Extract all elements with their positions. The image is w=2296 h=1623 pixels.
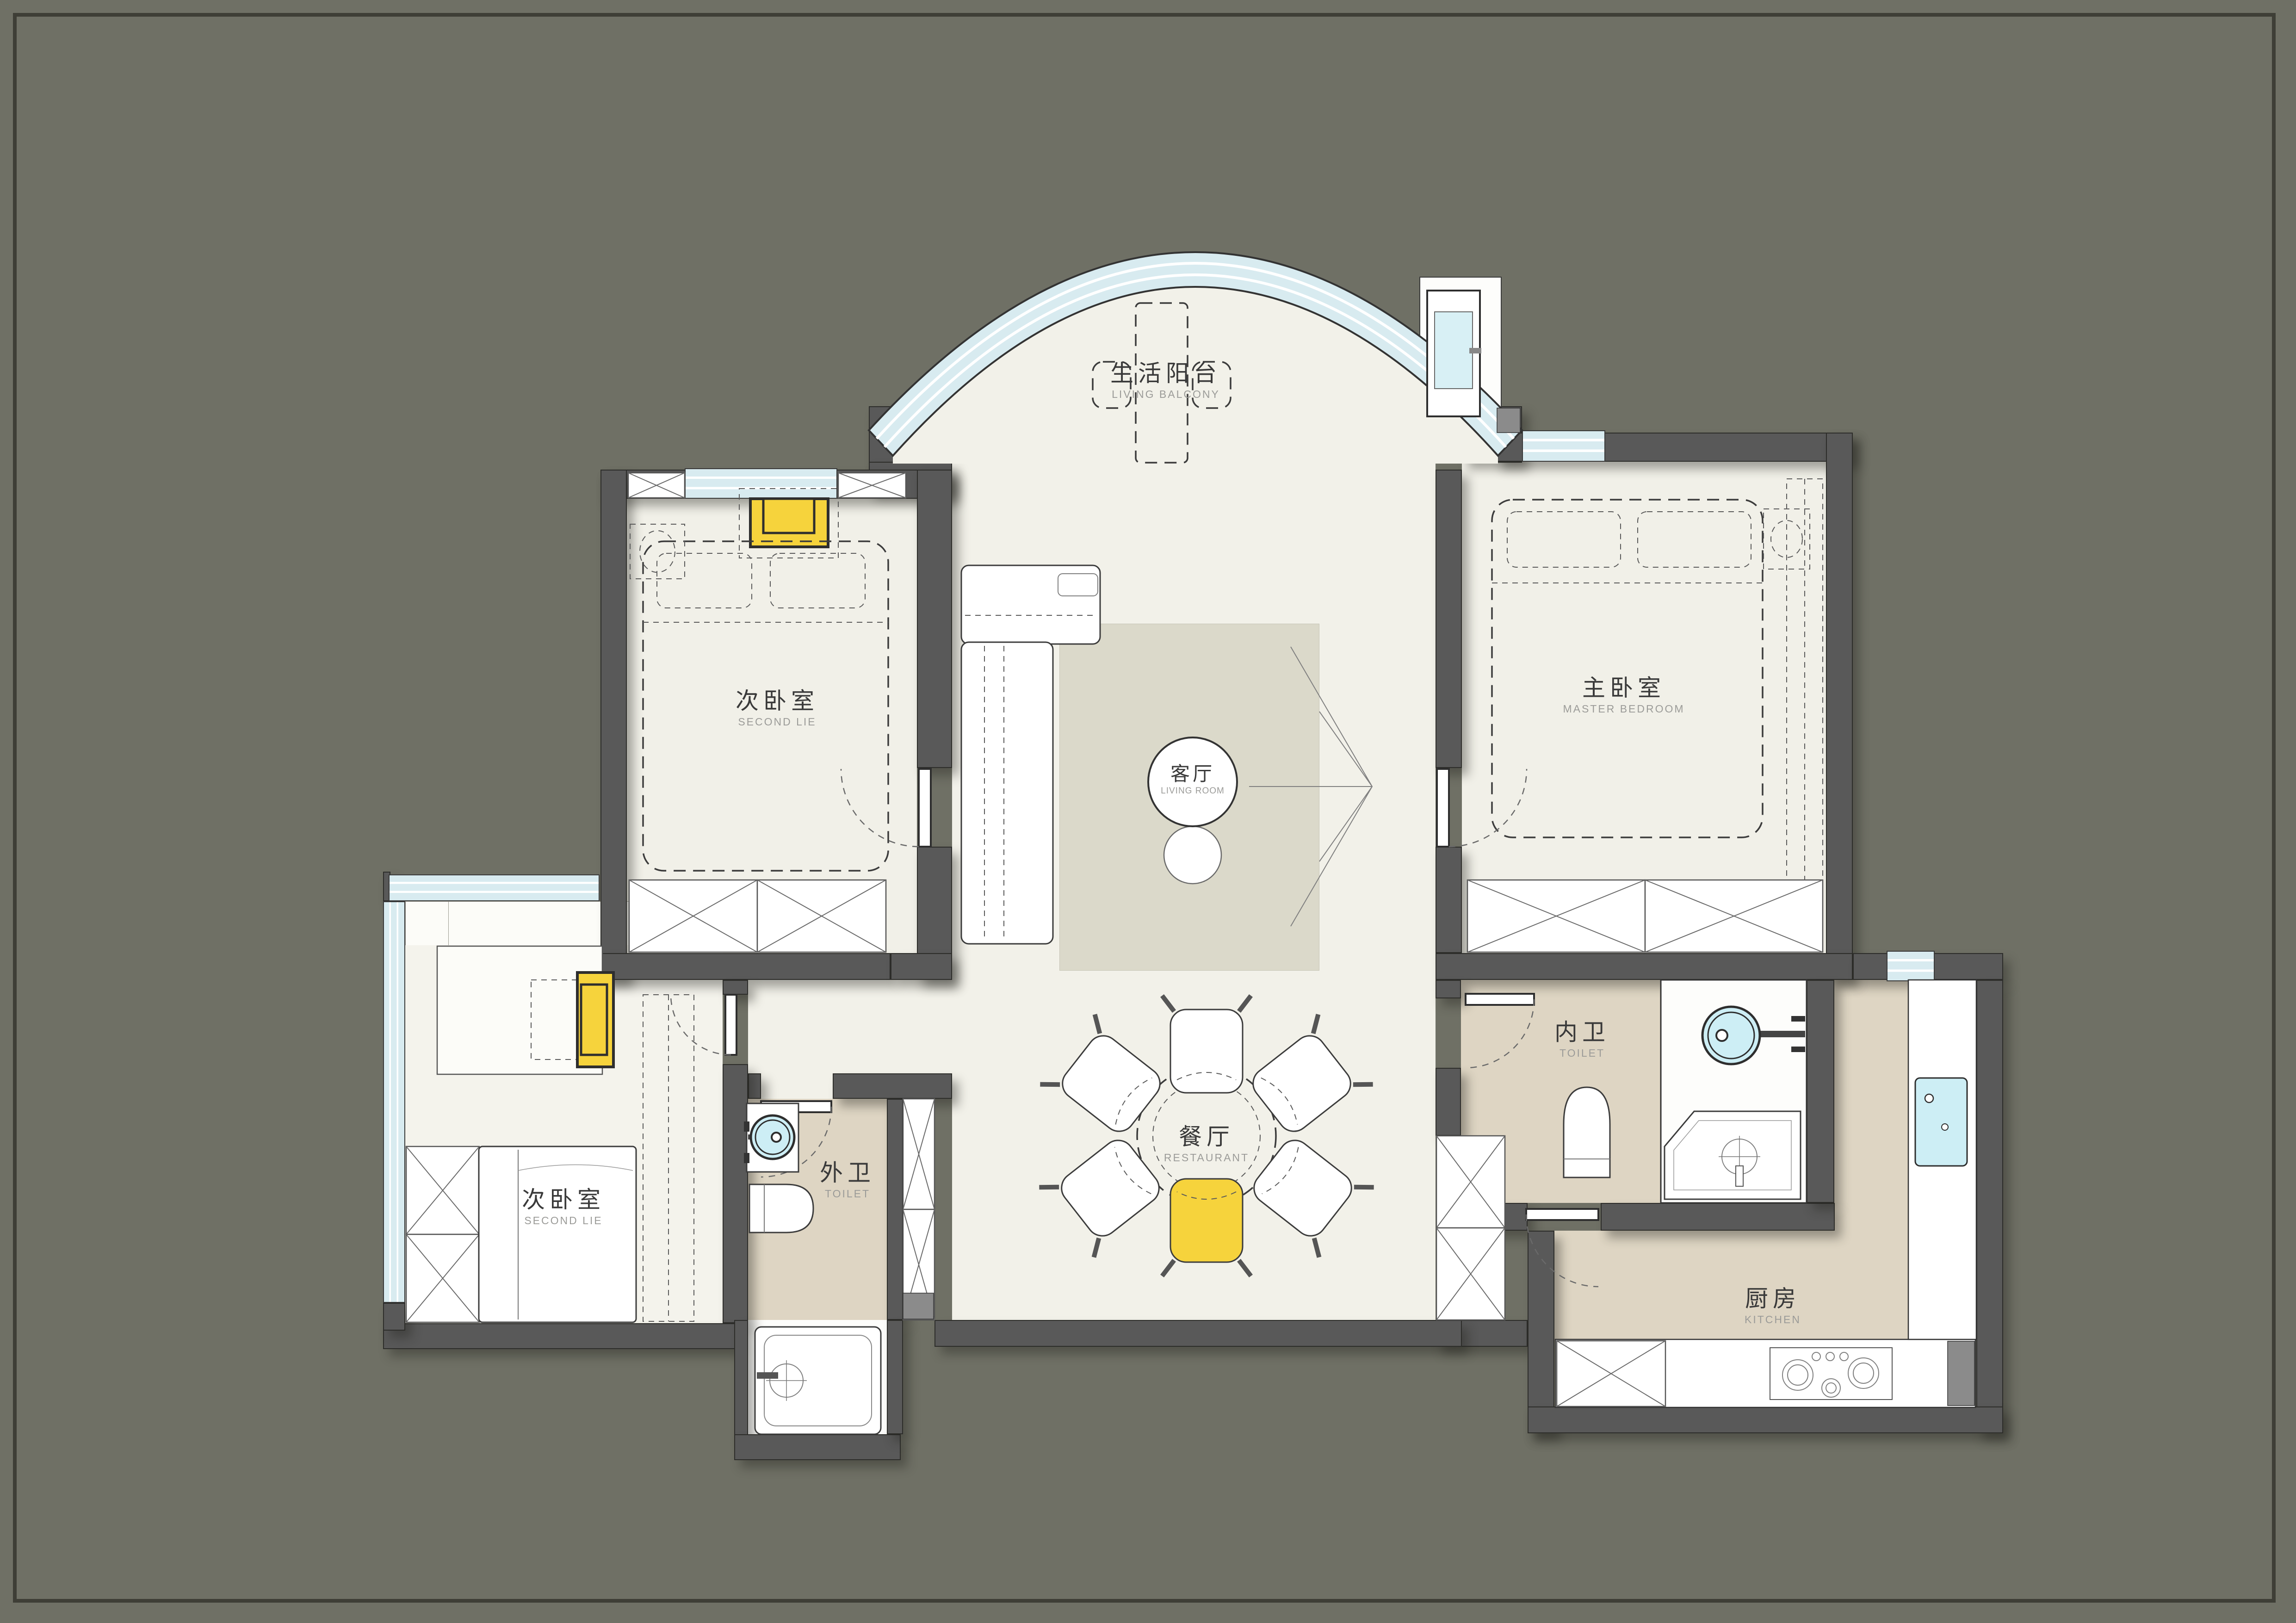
kitchen-sink xyxy=(1915,1078,1967,1166)
master-curtain-strip xyxy=(1787,479,1823,942)
kitchen-cabinet xyxy=(1557,1341,1665,1406)
room-label-inner-toilet: 内卫 TOILET xyxy=(1554,1018,1610,1060)
room-name-cn: 内卫 xyxy=(1554,1018,1610,1046)
bedroom-upper-wardrobe xyxy=(629,880,886,952)
inner-toilet-door xyxy=(1466,994,1534,1068)
room-name-en: MASTER BEDROOM xyxy=(1563,702,1684,716)
room-label-outer-toilet: 外卫 TOILET xyxy=(820,1159,875,1201)
bedroom-lower-wardrobe xyxy=(406,1146,479,1322)
bedroom-lower-bed xyxy=(479,1146,636,1322)
master-wardrobe xyxy=(1467,880,1823,952)
room-label-living-balcony: 生活阳台 LIVING BALCONY xyxy=(1110,359,1221,401)
room-name-cn: 厨房 xyxy=(1745,1285,1801,1313)
dining-chair xyxy=(1243,1127,1374,1258)
bathtub xyxy=(755,1327,881,1434)
room-name-cn: 餐厅 xyxy=(1164,1123,1249,1151)
floor-plan-canvas: 生活阳台 LIVING BALCONY 次卧室 SECOND LIE 主卧室 M… xyxy=(0,0,2296,1623)
room-label-second-bedroom-lower: 次卧室 SECOND LIE xyxy=(522,1186,605,1227)
kitchen-door xyxy=(1526,1209,1598,1287)
room-name-cn: 次卧室 xyxy=(736,687,819,715)
inner-toilet-shower xyxy=(1665,1111,1801,1199)
room-name-en: KITCHEN xyxy=(1745,1313,1801,1326)
room-name-cn: 外卫 xyxy=(820,1159,875,1187)
bedroom-upper-door xyxy=(841,769,931,847)
wall-accent xyxy=(1497,408,1520,433)
room-name-en: SECOND LIE xyxy=(736,715,819,729)
balcony-entry-door xyxy=(1427,291,1481,416)
dining-chair-yellow xyxy=(1162,1179,1251,1276)
room-name-cn: 主卧室 xyxy=(1563,674,1684,702)
master-bed xyxy=(1492,500,1763,837)
living-side-circle xyxy=(1164,826,1221,884)
living-tv-pointer xyxy=(1249,647,1372,926)
dining-chair xyxy=(1162,996,1251,1093)
room-name-cn: 生活阳台 xyxy=(1110,359,1221,387)
bedroom-upper-tv xyxy=(739,489,838,558)
room-name-en: LIVING BALCONY xyxy=(1110,387,1221,401)
room-name-en: TOILET xyxy=(820,1187,875,1201)
room-name-en: RESTAURANT xyxy=(1164,1151,1249,1165)
room-label-dining-room: 餐厅 RESTAURANT xyxy=(1164,1123,1249,1165)
kitchen-stove xyxy=(1770,1348,1892,1400)
master-door xyxy=(1437,769,1527,847)
hall-cabinet-right xyxy=(1436,1136,1505,1320)
dining-chair xyxy=(1039,1127,1170,1258)
outer-toilet-basin xyxy=(744,1103,798,1172)
dining-chair xyxy=(1242,1014,1373,1144)
door-handle-icon xyxy=(1469,348,1481,353)
bedroom-lower-closet-dashed xyxy=(643,995,694,1321)
inner-toilet-wc xyxy=(1564,1087,1610,1177)
room-name-en: SECOND LIE xyxy=(522,1214,605,1227)
hall-cabinet-left xyxy=(903,1099,934,1320)
dining-chair xyxy=(1040,1014,1171,1144)
room-label-master-bedroom: 主卧室 MASTER BEDROOM xyxy=(1563,674,1684,716)
room-label-second-bedroom-upper: 次卧室 SECOND LIE xyxy=(736,687,819,729)
room-label-kitchen: 厨房 KITCHEN xyxy=(1745,1285,1801,1326)
room-name-en: TOILET xyxy=(1554,1046,1610,1060)
plan-drawing-layer xyxy=(0,0,2296,1623)
room-label-living-room: 客厅 LIVING ROOM xyxy=(1161,762,1225,797)
bedroom-upper-nightstand xyxy=(630,524,685,579)
room-name-cn: 客厅 xyxy=(1161,762,1225,786)
wall-accent xyxy=(1948,1341,1974,1406)
room-name-en: LIVING ROOM xyxy=(1161,786,1225,797)
bedroom-upper-bay-cabinets xyxy=(628,473,906,498)
wall-accent xyxy=(903,1293,934,1319)
balcony-arc-window xyxy=(869,252,1522,464)
living-sofa xyxy=(961,565,1100,944)
bedroom-lower-door xyxy=(671,995,736,1055)
room-name-cn: 次卧室 xyxy=(522,1186,605,1214)
outer-toilet-wc xyxy=(749,1184,813,1233)
